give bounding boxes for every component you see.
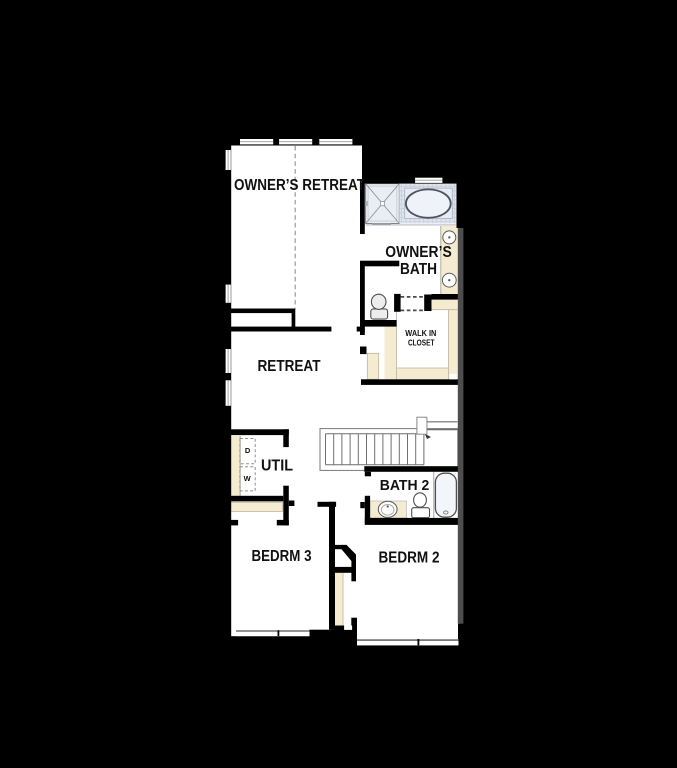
svg-text:D: D	[245, 446, 251, 455]
svg-text:UTIL: UTIL	[261, 457, 293, 474]
svg-text:OWNER’S: OWNER’S	[385, 244, 452, 261]
svg-text:WALK IN: WALK IN	[405, 329, 436, 338]
svg-text:RETREAT: RETREAT	[258, 358, 321, 375]
svg-text:CLOSET: CLOSET	[408, 338, 435, 347]
svg-text:BEDRM 3: BEDRM 3	[252, 548, 312, 565]
svg-text:BATH 2: BATH 2	[380, 477, 430, 494]
svg-text:W: W	[244, 474, 252, 483]
svg-text:BEDRM 2: BEDRM 2	[379, 550, 440, 567]
svg-text:OWNER’S RETREAT: OWNER’S RETREAT	[234, 177, 365, 194]
svg-text:BATH: BATH	[400, 261, 437, 278]
